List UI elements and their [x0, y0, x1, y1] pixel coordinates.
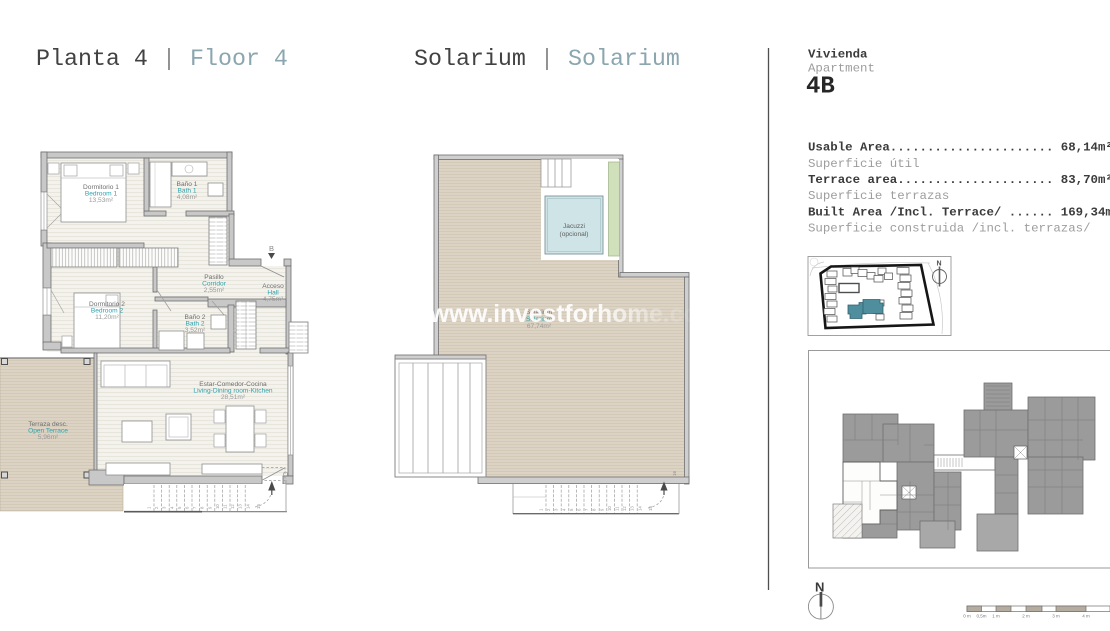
svg-text:|: | — [540, 46, 554, 72]
svg-text:13,53m²: 13,53m² — [89, 197, 114, 204]
svg-text:3 m: 3 m — [1052, 614, 1060, 619]
svg-text:N: N — [937, 261, 942, 268]
svg-text:16: 16 — [672, 470, 677, 476]
svg-text:4 m: 4 m — [1082, 614, 1090, 619]
svg-text:14: 14 — [245, 504, 250, 509]
svg-text:Jacuzzi: Jacuzzi — [563, 223, 586, 230]
svg-text:12: 12 — [230, 504, 235, 509]
svg-text:(opcional): (opcional) — [560, 231, 589, 238]
svg-text:Superficie útil: Superficie útil — [808, 157, 920, 171]
svg-text:4,08m²: 4,08m² — [177, 194, 198, 201]
svg-text:0 m: 0 m — [963, 614, 971, 619]
svg-text:1 m: 1 m — [992, 614, 1000, 619]
svg-text:2,55m²: 2,55m² — [204, 287, 225, 294]
svg-text:Built Area /Incl. Terrace/ ...: Built Area /Incl. Terrace/ ...... 169,34… — [808, 205, 1110, 219]
svg-text:28,51m²: 28,51m² — [221, 394, 246, 401]
svg-text:B: B — [269, 244, 274, 253]
svg-text:Superficie terrazas: Superficie terrazas — [808, 189, 949, 203]
svg-text:13: 13 — [630, 506, 635, 511]
svg-text:11,20m²: 11,20m² — [95, 314, 120, 321]
svg-text:Solarium: Solarium — [568, 46, 680, 72]
svg-text:4B: 4B — [806, 74, 835, 101]
svg-text:Terrace area..................: Terrace area..................... 83,70m… — [808, 173, 1110, 187]
svg-text:Planta 4: Planta 4 — [36, 46, 148, 72]
svg-text:3,52m²: 3,52m² — [185, 327, 206, 334]
svg-text:15: 15 — [648, 505, 653, 511]
svg-text:Solarium: Solarium — [414, 46, 526, 72]
svg-text:12: 12 — [622, 506, 627, 511]
svg-text:4,75m²: 4,75m² — [263, 296, 284, 303]
svg-text:Vivienda: Vivienda — [808, 48, 868, 62]
svg-text:11: 11 — [223, 504, 228, 509]
svg-text:|: | — [162, 46, 176, 72]
svg-text:Usable Area...................: Usable Area...................... 68,14m… — [808, 140, 1110, 154]
svg-text:11: 11 — [615, 506, 620, 511]
svg-text:Superficie construida /incl. t: Superficie construida /incl. terrazas/ — [808, 221, 1091, 235]
svg-text:Floor 4: Floor 4 — [190, 46, 288, 72]
svg-text:14: 14 — [637, 506, 642, 511]
svg-text:13: 13 — [238, 504, 243, 509]
svg-text:10: 10 — [607, 506, 612, 511]
svg-text:0,5m: 0,5m — [976, 614, 986, 619]
svg-text:2 m: 2 m — [1022, 614, 1030, 619]
svg-text:10: 10 — [215, 504, 220, 509]
svg-text:5,96m²: 5,96m² — [38, 434, 59, 441]
svg-text:www.investforhome.com: www.investforhome.com — [429, 301, 720, 328]
